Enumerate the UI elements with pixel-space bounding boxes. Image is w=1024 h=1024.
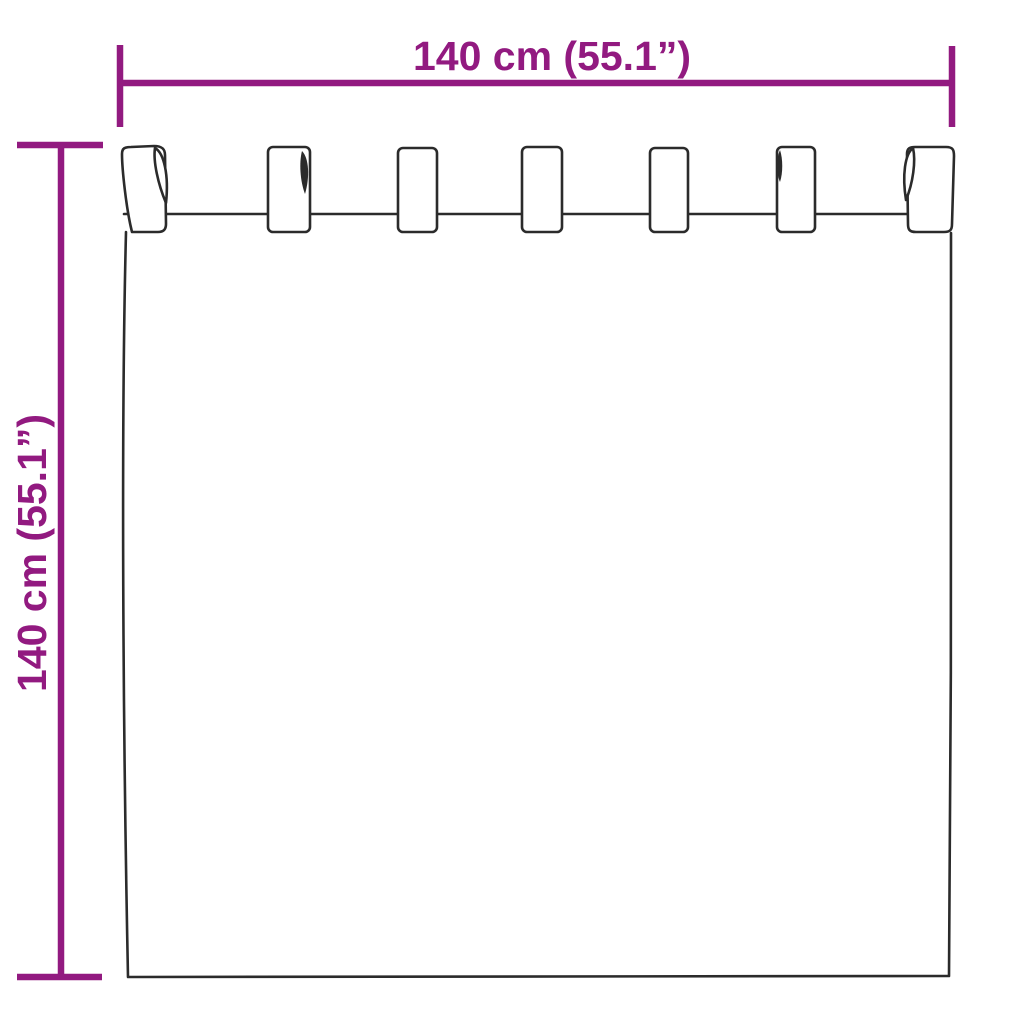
curtain-tab-6 <box>777 147 815 232</box>
curtain-drawing <box>122 146 954 977</box>
curtain-tab-4 <box>522 147 562 232</box>
curtain-dimension-drawing: 140 cm (55.1”) 140 cm (55.1”) <box>0 0 1024 1024</box>
curtain-tab-5 <box>650 148 688 232</box>
height-dimension-label: 140 cm (55.1”) <box>9 414 55 692</box>
curtain-panel <box>123 232 951 977</box>
product-dimension-diagram: 140 cm (55.1”) 140 cm (55.1”) <box>0 0 1024 1024</box>
width-dimension-label: 140 cm (55.1”) <box>413 33 691 79</box>
curtain-tab-3 <box>398 148 437 232</box>
